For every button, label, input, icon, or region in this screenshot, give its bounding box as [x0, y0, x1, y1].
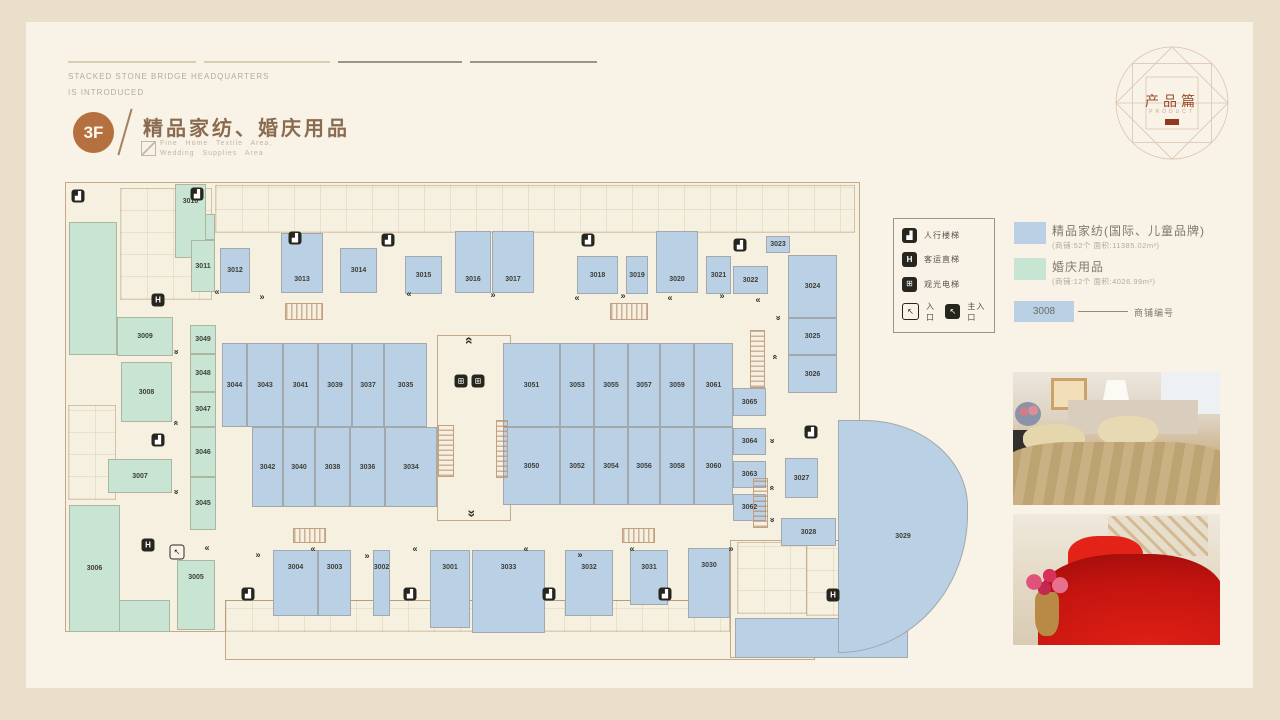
shop-label: 3053: [569, 382, 585, 389]
shop-3023: 3023: [766, 236, 790, 253]
shop-label: 3038: [325, 464, 341, 471]
shop-3055: 3055: [594, 343, 628, 427]
shop-label: 3012: [227, 267, 243, 274]
shop-label: 3061: [706, 382, 722, 389]
corridor-arrow: «: [406, 290, 411, 299]
shop-3048: 3048: [190, 354, 216, 392]
shop-label: 3043: [257, 382, 273, 389]
shop-3022: 3022: [733, 266, 768, 294]
escalator: [750, 330, 765, 388]
shop-label: 3044: [227, 382, 243, 389]
wedding-category-detail: (商铺:12个 面积:4026.99m²): [1052, 276, 1155, 287]
shop-3043: 3043: [247, 343, 283, 427]
gold-vase: [1035, 592, 1059, 636]
shop-label: 3001: [442, 564, 458, 571]
shop-label: 3004: [288, 564, 304, 571]
shop-label: 3018: [590, 272, 606, 279]
escalator: [610, 303, 648, 320]
shop-3037: 3037: [352, 343, 384, 427]
shop-label: 3026: [805, 371, 821, 378]
shop-label: 3040: [291, 464, 307, 471]
stairs-icon: ▟: [191, 188, 204, 201]
shop-number-example: 3008: [1014, 301, 1074, 322]
shop-3008: 3008: [121, 362, 172, 422]
shop-label: 3041: [293, 382, 309, 389]
corridor-arrow: »: [255, 551, 260, 560]
sightseeing-elevator-icon: ⊞: [472, 375, 485, 388]
shop-label: 3054: [603, 463, 619, 470]
corridor-arrow: «: [774, 315, 783, 320]
shop-label: 3022: [743, 277, 759, 284]
shop-3051: 3051: [503, 343, 560, 427]
page: { "header": { "line1": "STACKED STONE BR…: [0, 0, 1280, 720]
corridor-arrow: »: [577, 551, 582, 560]
main-entrance-icon: ↖: [945, 304, 960, 319]
shop-label: 3049: [195, 336, 211, 343]
shop-3018: 3018: [577, 256, 618, 294]
corridor-arrow: «: [667, 294, 672, 303]
shop-3005: 3005: [177, 560, 215, 630]
shop-3027: 3027: [785, 458, 818, 498]
room-details: [737, 542, 807, 614]
stairs-icon: ▟: [404, 588, 417, 601]
shop-label: 3050: [524, 463, 540, 470]
shop-label: 3035: [398, 382, 414, 389]
stairs-icon: ▟: [543, 588, 556, 601]
corridor-arrow: »: [728, 545, 733, 554]
shop-3047: 3047: [190, 392, 216, 427]
shop-label: 3058: [669, 463, 685, 470]
stairs-icon: ▟: [152, 434, 165, 447]
shop-label: 3051: [524, 382, 540, 389]
sightseeing-elevator-icon: ⊞: [455, 375, 468, 388]
escalator: [285, 303, 323, 320]
lamp: [1103, 380, 1129, 400]
shop-3049: 3049: [190, 325, 216, 354]
corridor-arrow: »: [259, 293, 264, 302]
corridor-arrow: «: [204, 544, 209, 553]
corridor-arrow: «: [523, 545, 528, 554]
shop-3024: 3024: [788, 255, 837, 318]
corridor-arrow: «: [310, 545, 315, 554]
shop-3045: 3045: [190, 477, 216, 530]
entrance-icon: ↖: [170, 545, 185, 560]
shop-3046: 3046: [190, 427, 216, 477]
shop-3026: 3026: [788, 355, 837, 393]
shop-3052: 3052: [560, 427, 594, 505]
shop-3044: 3044: [222, 343, 247, 427]
shop-3061: 3061: [694, 343, 733, 427]
shop-3033: 3033: [472, 550, 545, 633]
shop-3019: 3019: [626, 256, 648, 294]
shop-label: 3029: [895, 533, 911, 540]
escalator: [496, 420, 508, 478]
corridor-arrow: «: [629, 545, 634, 554]
escalator: [438, 425, 454, 477]
shop-label: 3016: [465, 276, 481, 283]
stairs-icon: ▟: [72, 190, 85, 203]
wedding-swatch: [1014, 258, 1046, 280]
corridor-arrow: «: [172, 349, 181, 354]
bouquet: [1021, 566, 1073, 598]
facility-legend: ▟ 人行楼梯 H 客运直梯 ⊞ 观光电梯 ↖ 入口 ↖ 主入口: [893, 218, 995, 333]
textile-swatch: [1014, 222, 1046, 244]
wedding-category-name: 婚庆用品: [1052, 258, 1104, 275]
corridor-arrow: «: [214, 288, 219, 297]
shop-label: 3013: [294, 276, 310, 283]
shop-label: 3056: [636, 463, 652, 470]
photo-gold-bedding: [1013, 372, 1220, 505]
corridor-arrow: «: [172, 420, 181, 425]
shop-label: 3025: [805, 333, 821, 340]
shop-label: 3009: [137, 333, 153, 340]
shop-label: 3027: [794, 475, 810, 482]
gold-duvet: [1013, 442, 1220, 505]
shop-label: 3005: [188, 574, 204, 581]
shop-3030: 3030: [688, 548, 730, 618]
textile-category-name: 精品家纺(国际、儿童品牌): [1052, 222, 1205, 239]
shop-3021: 3021: [706, 256, 731, 294]
textile-category-detail: (商铺:52个 面积:11385.02m²): [1052, 240, 1160, 251]
shop-3064: 3064: [733, 428, 766, 455]
shop-label: 3006: [87, 565, 103, 572]
shop-3012: 3012: [220, 248, 250, 293]
shop-3034: 3034: [385, 427, 437, 507]
shop-label: 3015: [416, 272, 432, 279]
shop-label: 3048: [195, 370, 211, 377]
shop-3060: 3060: [694, 427, 733, 505]
shop-label: 3036: [360, 464, 376, 471]
shop-3004: 3004: [273, 550, 318, 616]
shop-label: 3055: [603, 382, 619, 389]
elevator-icon: H: [142, 539, 155, 552]
legend-row-elevator: H 客运直梯: [902, 252, 986, 267]
corridor-arrow: «: [768, 438, 777, 443]
shop-3032: 3032: [565, 550, 613, 616]
shop-label: 3024: [805, 283, 821, 290]
shop-3006: 3006: [69, 505, 120, 632]
shop-area: [69, 222, 117, 355]
elevator-icon: H: [152, 294, 165, 307]
corridor-arrow: «: [768, 485, 777, 490]
stairs-icon: ▟: [734, 239, 747, 252]
shop-label: 3028: [801, 529, 817, 536]
stairs-icon: ▟: [659, 588, 672, 601]
shop-label: 3021: [711, 272, 727, 279]
legend-row-entrances: ↖ 入口 ↖ 主入口: [902, 301, 986, 323]
sightseeing-elevator-icon: ⊞: [902, 277, 917, 292]
shop-label: 3019: [629, 272, 645, 279]
corridor-arrow: »: [620, 292, 625, 301]
shop-number-label: 商铺编号: [1134, 306, 1174, 319]
stairs-icon: ▟: [382, 234, 395, 247]
corridor-arrow: »: [490, 291, 495, 300]
shop-3035: 3035: [384, 343, 427, 427]
corridor-arrow: «: [172, 489, 181, 494]
shop-3014: 3014: [340, 248, 377, 293]
corridor-arrow: «: [768, 517, 777, 522]
shop-3057: 3057: [628, 343, 660, 427]
stairs-icon: ▟: [805, 426, 818, 439]
shop-label: 3017: [505, 276, 521, 283]
corridor-arrow: «: [412, 545, 417, 554]
legend-label: 客运直梯: [924, 254, 960, 265]
shop-3016: 3016: [455, 231, 491, 293]
shop-number-line: [1078, 311, 1128, 312]
shop-3065: 3065: [733, 388, 766, 416]
shop-label: 3003: [327, 564, 343, 571]
stairs-icon: ▟: [289, 232, 302, 245]
corridor-arrow: «: [463, 511, 477, 518]
shop-3042: 3042: [252, 427, 283, 507]
shop-label: 3052: [569, 463, 585, 470]
escalator: [293, 528, 326, 543]
shop-3001: 3001: [430, 550, 470, 628]
shop-label: 3011: [195, 263, 210, 270]
shop-3002: 3002: [373, 550, 390, 616]
shop-3038: 3038: [315, 427, 350, 507]
entrance-label: 入口: [926, 301, 938, 323]
corridor-arrow: «: [755, 296, 760, 305]
shop-label: 3063: [742, 471, 758, 478]
legend-label: 观光电梯: [924, 279, 960, 290]
photo-red-bedding: [1013, 514, 1220, 645]
shop-label: 3014: [351, 267, 367, 274]
shop-label: 3031: [641, 564, 657, 571]
shop-label: 3057: [636, 382, 652, 389]
shop-label: 3034: [403, 464, 419, 471]
corridor-arrow: »: [719, 292, 724, 301]
shop-3053: 3053: [560, 343, 594, 427]
shop-label: 3059: [669, 382, 685, 389]
stairs-icon: ▟: [582, 234, 595, 247]
elevator-icon: H: [902, 252, 917, 267]
legend-row-stairs: ▟ 人行楼梯: [902, 228, 986, 243]
corridor-arrow: «: [771, 354, 780, 359]
shop-label: 3020: [669, 276, 685, 283]
shop-3054: 3054: [594, 427, 628, 505]
flowers: [1015, 402, 1041, 426]
legend-label: 人行楼梯: [924, 230, 960, 241]
shop-3017: 3017: [492, 231, 534, 293]
shop-label: 3065: [742, 399, 758, 406]
corridor-arrow: «: [463, 337, 477, 344]
shop-3058: 3058: [660, 427, 694, 505]
shop-3003: 3003: [318, 550, 351, 616]
escalator: [622, 528, 655, 543]
shop-label: 3037: [360, 382, 376, 389]
shop-3041: 3041: [283, 343, 318, 427]
shop-label: 3046: [195, 449, 211, 456]
stairs-icon: ▟: [902, 228, 917, 243]
shop-3039: 3039: [318, 343, 352, 427]
legend-row-sightseeing-elevator: ⊞ 观光电梯: [902, 277, 986, 292]
shop-label: 3039: [327, 382, 343, 389]
shop-3029: 3029: [838, 420, 968, 653]
shop-label: 3002: [374, 564, 390, 571]
shop-label: 3032: [581, 564, 597, 571]
shop-label: 3007: [132, 473, 148, 480]
shop-label: 3023: [770, 241, 786, 248]
elevator-icon: H: [827, 589, 840, 602]
shop-3028: 3028: [781, 518, 836, 546]
entrance-icon: ↖: [902, 303, 919, 320]
shop-3011: 3011: [191, 240, 215, 292]
shop-label: 3060: [706, 463, 722, 470]
room-details: [215, 185, 855, 233]
shop-3056: 3056: [628, 427, 660, 505]
shop-label: 3045: [195, 500, 211, 507]
stairs-icon: ▟: [242, 588, 255, 601]
shop-label: 3042: [260, 464, 276, 471]
corridor-arrow: «: [574, 294, 579, 303]
shop-3007: 3007: [108, 459, 172, 493]
shop-label: 3033: [501, 564, 517, 571]
shop-3040: 3040: [283, 427, 315, 507]
shop-3025: 3025: [788, 318, 837, 355]
corridor-arrow: »: [364, 552, 369, 561]
shop-label: 3064: [742, 438, 758, 445]
shop-3009: 3009: [117, 317, 173, 356]
shop-label: 3030: [701, 562, 717, 569]
shop-label: 3008: [139, 389, 155, 396]
shop-3050: 3050: [503, 427, 560, 505]
shop-label: 3047: [195, 406, 211, 413]
shop-3036: 3036: [350, 427, 385, 507]
main-entrance-label: 主入口: [967, 301, 986, 323]
shop-3020: 3020: [656, 231, 698, 293]
shop-3013: 3013: [281, 233, 323, 293]
shop-3059: 3059: [660, 343, 694, 427]
